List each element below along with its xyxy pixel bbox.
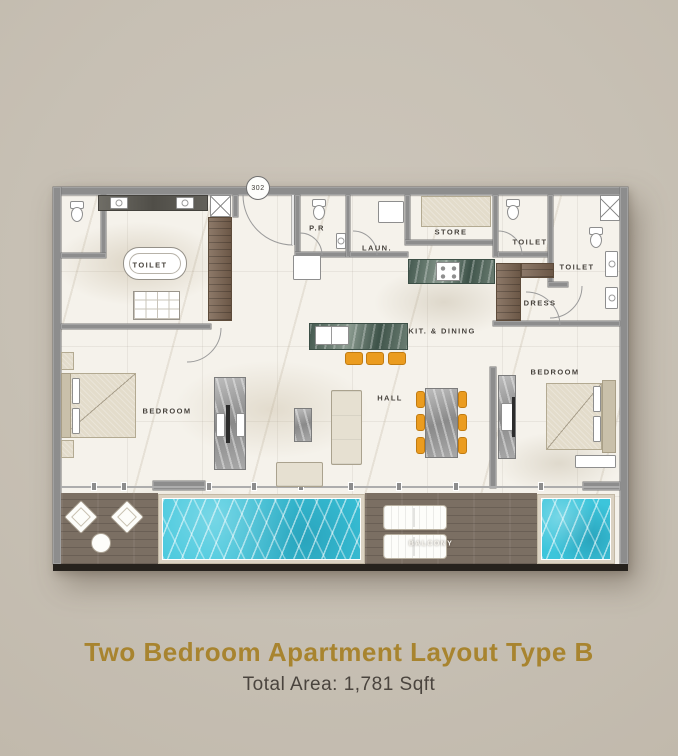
plan-title: Two Bedroom Apartment Layout Type B <box>0 637 678 668</box>
dining-chair <box>458 414 467 431</box>
nightstand <box>61 352 74 370</box>
wall-outer-top <box>53 187 628 195</box>
kitchen-cabinet <box>293 255 321 280</box>
wall-tv-right-bedroom <box>490 367 496 488</box>
dining-chair <box>458 437 467 454</box>
balcony-round-table <box>91 533 111 553</box>
page: TOILET P.R LAUN. STORE TOILET TOILET DRE… <box>0 0 678 756</box>
toilet-fixture-right <box>588 227 604 247</box>
room-label-toilet-mid: TOILET <box>513 238 548 247</box>
room-label-toilet-left: TOILET <box>133 261 168 270</box>
coffee-table <box>294 408 312 442</box>
wall-store-right <box>493 195 498 257</box>
toilet-right-vanity <box>605 287 618 309</box>
wall-powder-right <box>346 195 350 257</box>
wall-toilet-mid-bottom <box>498 252 550 257</box>
wall-outer-right <box>620 187 628 564</box>
vanity-sink <box>110 197 128 209</box>
room-label-balcony: BALCONY <box>409 541 453 548</box>
toilet-fixture-mid <box>505 199 521 219</box>
window-mullion <box>91 482 97 491</box>
bed-bench <box>575 455 616 468</box>
wall-store-bottom <box>405 240 495 245</box>
room-label-laundry: LAUN. <box>362 244 392 253</box>
wall-wc-bottom <box>61 253 106 258</box>
sofa-second <box>276 462 323 487</box>
shaft-box-right <box>600 195 620 221</box>
dining-chair <box>416 391 425 408</box>
dress-wardrobe-top <box>521 263 554 278</box>
stove <box>436 262 460 281</box>
toilet-fixture-powder <box>311 199 327 219</box>
room-label-bedroom-right: BEDROOM <box>531 368 580 377</box>
wall-outer-left <box>53 187 61 564</box>
tv-screen-left <box>226 405 230 443</box>
window-mullion <box>206 482 212 491</box>
pillow <box>593 386 601 412</box>
shaft-box-left <box>210 195 231 217</box>
window-glass-line <box>61 486 620 488</box>
plan-base-line <box>53 564 628 571</box>
bed-left-headboard <box>61 373 71 438</box>
store-shelving <box>421 196 491 227</box>
window-mullion <box>396 482 402 491</box>
bed-right-headboard <box>602 380 616 453</box>
sofa-main <box>331 390 362 465</box>
room-label-toilet-right: TOILET <box>560 263 595 272</box>
window-mullion <box>453 482 459 491</box>
room-label-powder: P.R <box>309 224 325 233</box>
shower-tray <box>133 291 180 320</box>
vanity-sink <box>176 197 194 209</box>
bar-stool <box>388 352 406 365</box>
powder-sink <box>336 233 346 249</box>
floor-plan: TOILET P.R LAUN. STORE TOILET TOILET DRE… <box>53 187 628 571</box>
dining-table <box>425 388 458 458</box>
room-label-store: STORE <box>435 228 468 237</box>
bar-stool <box>345 352 363 365</box>
unit-number: 302 <box>251 185 264 192</box>
pillow <box>72 408 80 434</box>
tv-console <box>236 413 245 437</box>
pillow <box>72 378 80 404</box>
window-mullion <box>251 482 257 491</box>
wall-laundry-right <box>405 195 410 245</box>
toilet-right-vanity <box>605 251 618 277</box>
window-mullion <box>538 482 544 491</box>
toilet-fixture-wc <box>69 201 85 221</box>
dining-chair <box>416 437 425 454</box>
wall-laundry-bottom <box>350 252 408 257</box>
pool-right <box>541 498 611 560</box>
washer <box>378 201 404 223</box>
tv-screen-right <box>512 397 515 437</box>
wall-powder-left <box>295 195 300 257</box>
wall-foyer-stub <box>233 195 238 217</box>
room-label-dress: DRESS <box>524 299 557 308</box>
dress-wardrobe-vertical <box>496 263 521 321</box>
room-label-hall: HALL <box>377 394 403 403</box>
bar-stool <box>366 352 384 365</box>
unit-number-badge: 302 <box>246 176 270 200</box>
wall-bath-bottom <box>61 324 211 329</box>
pillow <box>593 416 601 442</box>
dining-chair <box>416 414 425 431</box>
room-label-kitchen-dining: KIT. & DINING <box>408 327 475 336</box>
wardrobe-foyer <box>208 217 232 321</box>
wall-dress-bottom <box>493 321 620 326</box>
pool-left <box>162 498 361 560</box>
sun-lounger <box>383 505 447 530</box>
nightstand <box>61 440 74 458</box>
room-label-bedroom-left: BEDROOM <box>143 407 192 416</box>
plan-total-area: Total Area: 1,781 Sqft <box>0 674 678 696</box>
island-sink <box>315 326 349 345</box>
window-mullion <box>348 482 354 491</box>
dining-chair <box>458 391 467 408</box>
tv-console <box>216 413 225 437</box>
window-mullion <box>121 482 127 491</box>
wall-toilet-right-stub <box>548 282 568 287</box>
